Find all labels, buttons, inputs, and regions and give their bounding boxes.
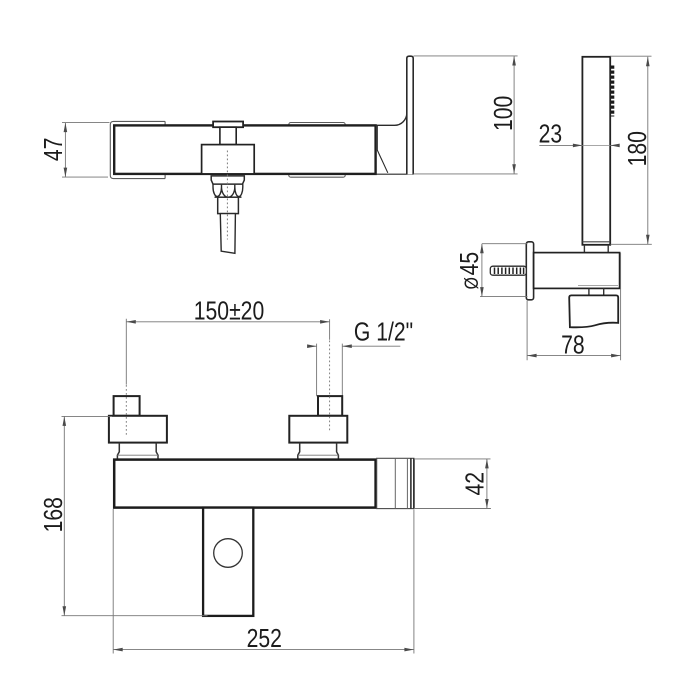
svg-text:42: 42 (461, 472, 489, 496)
svg-text:100: 100 (489, 96, 517, 131)
svg-text:Ø45: Ø45 (455, 252, 483, 289)
svg-text:180: 180 (623, 131, 651, 166)
svg-text:78: 78 (561, 331, 585, 359)
svg-text:150±20: 150±20 (194, 297, 264, 325)
svg-text:G 1/2": G 1/2" (354, 318, 413, 346)
svg-text:47: 47 (39, 138, 67, 162)
svg-text:23: 23 (539, 120, 563, 148)
svg-text:168: 168 (39, 497, 67, 532)
svg-text:252: 252 (247, 624, 282, 652)
